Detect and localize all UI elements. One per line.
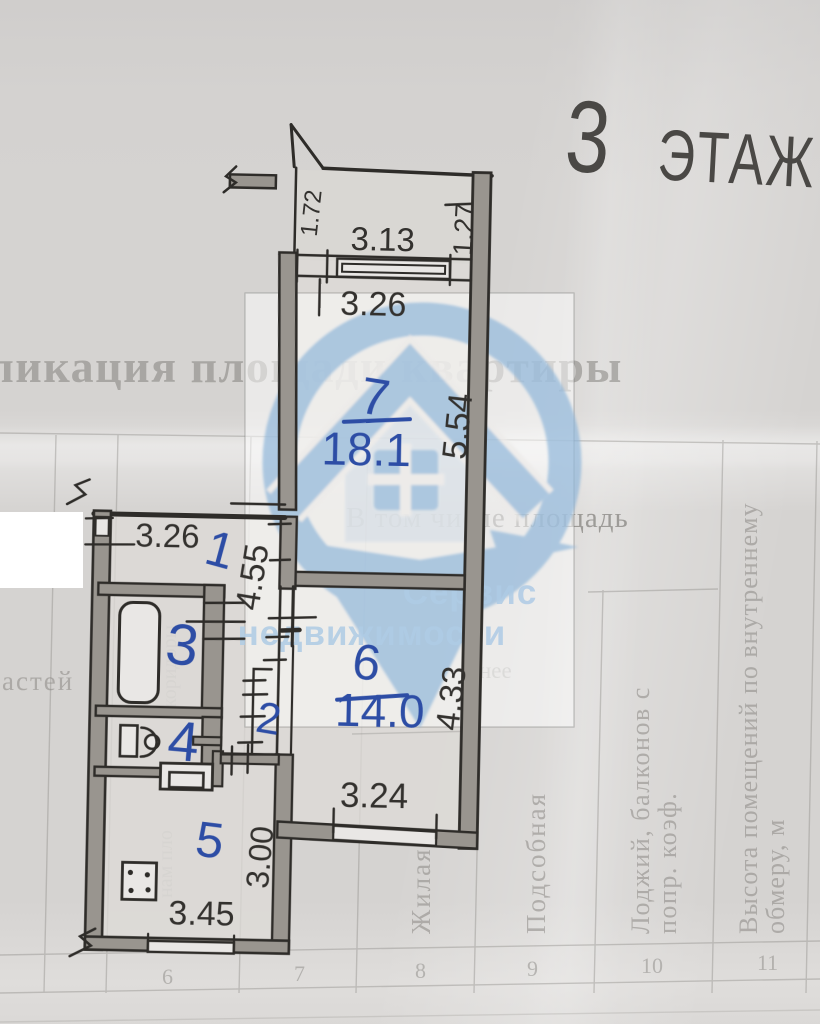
svg-text:8: 8 [415, 958, 426, 983]
svg-text:3.45: 3.45 [168, 894, 235, 933]
svg-text:3.26: 3.26 [340, 285, 407, 324]
svg-text:6: 6 [162, 964, 173, 989]
svg-text:5.54: 5.54 [435, 391, 480, 461]
svg-text:11: 11 [757, 950, 778, 975]
svg-text:астей: астей [2, 666, 74, 696]
svg-text:ЭТАЖ: ЭТАЖ [656, 115, 818, 204]
svg-text:3.26: 3.26 [135, 516, 200, 554]
svg-text:обмеру, м: обмеру, м [761, 819, 790, 934]
svg-text:Лоджий, балконов с: Лоджий, балконов с [626, 686, 655, 934]
svg-text:9: 9 [527, 956, 538, 981]
svg-text:14.0: 14.0 [335, 684, 426, 738]
svg-text:1.72: 1.72 [296, 188, 328, 237]
svg-text:18.1: 18.1 [321, 422, 412, 476]
svg-text:попр. коэф.: попр. коэф. [653, 792, 682, 934]
svg-text:Подсобная: Подсобная [521, 792, 551, 934]
svg-text:3.13: 3.13 [350, 220, 415, 258]
svg-text:3.24: 3.24 [340, 776, 409, 816]
svg-text:Жилая: Жилая [406, 847, 436, 934]
svg-text:3.00: 3.00 [239, 824, 280, 889]
svg-text:3: 3 [562, 79, 614, 196]
svg-text:7: 7 [294, 961, 305, 986]
svg-text:Высота помещений по внутреннем: Высота помещений по внутреннему [734, 502, 763, 934]
svg-text:10: 10 [641, 953, 663, 978]
